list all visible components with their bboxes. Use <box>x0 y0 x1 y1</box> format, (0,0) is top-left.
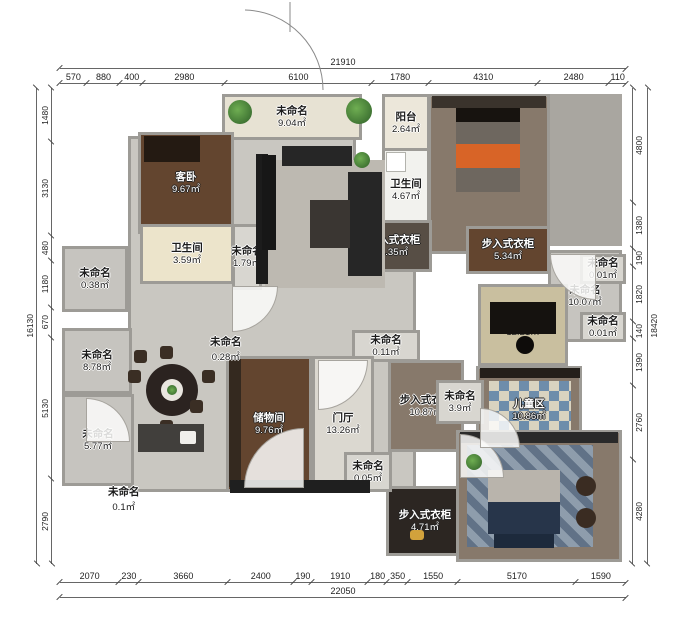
dim-total-label: 22050 <box>60 585 626 598</box>
wardrobe[interactable] <box>432 96 546 108</box>
dim-segment: 190 <box>294 570 313 583</box>
room-label: 步入式衣柜5.34㎡ <box>469 229 547 271</box>
room-balcony[interactable]: 阳台2.64㎡ <box>382 94 430 152</box>
dim-segment: 1380 <box>632 203 645 249</box>
dim-segment: 1590 <box>576 570 626 583</box>
dim-segment: 480 <box>39 236 52 262</box>
dim-segment: 190 <box>632 249 645 267</box>
room-label-unnamed-0-1: 未命名 0.1㎡ <box>108 484 140 513</box>
dining-chair <box>190 400 203 413</box>
dim-segment: 180 <box>368 570 386 583</box>
armchair <box>576 508 596 528</box>
coffee-table[interactable] <box>310 200 350 248</box>
wall-block <box>550 94 622 246</box>
sofa[interactable] <box>348 172 382 276</box>
dining-chair <box>128 370 141 383</box>
room-unnamed-3-9[interactable]: 未命名3.9㎡ <box>436 380 484 424</box>
plant-icon <box>228 100 252 124</box>
dim-segment: 2480 <box>538 71 609 84</box>
kitchen-island[interactable] <box>138 424 204 452</box>
dim-segment: 1780 <box>372 71 429 84</box>
bed-blanket-navy <box>488 502 560 534</box>
room-label: 未命名0.01㎡ <box>583 315 623 339</box>
dim-total-top: 21910 <box>60 56 626 69</box>
kids-shelf <box>480 368 580 378</box>
room-label-unnamed-0-28: 未命名 0.28㎡ <box>210 334 242 363</box>
shower <box>386 152 406 172</box>
room-label: 阳台2.64㎡ <box>385 97 427 149</box>
dim-segment: 1180 <box>39 261 52 307</box>
bed-blanket-orange <box>456 144 520 168</box>
dim-segment: 1820 <box>632 267 645 322</box>
bed-headboard <box>456 108 520 122</box>
dining-chair <box>134 350 147 363</box>
dim-segment: 5170 <box>458 570 576 583</box>
sofa[interactable] <box>282 146 352 166</box>
study-desk[interactable] <box>490 302 556 334</box>
dim-segment: 1910 <box>312 570 368 583</box>
plant-icon <box>346 98 372 124</box>
cabinet <box>262 155 276 250</box>
dim-segment: 670 <box>39 308 52 338</box>
dim-segment: 1390 <box>632 339 645 386</box>
dim-segment: 2790 <box>39 479 52 564</box>
dim-segment: 4310 <box>429 71 538 84</box>
dim-total-bottom: 22050 <box>60 585 626 598</box>
room-label: 卫生间3.59㎡ <box>143 227 231 281</box>
room-label: 未命名3.9㎡ <box>439 383 481 421</box>
room-unnamed-8-78[interactable]: 未命名8.78㎡ <box>62 328 132 394</box>
dim-segment: 110 <box>609 71 626 84</box>
dim-segment: 880 <box>87 71 120 84</box>
room-label: 未命名8.78㎡ <box>65 331 129 391</box>
closet-item <box>410 530 424 540</box>
dim-segment: 570 <box>60 71 87 84</box>
dim-segment: 2760 <box>632 386 645 460</box>
dim-segment: 1480 <box>39 88 52 142</box>
plant-icon <box>466 454 482 470</box>
room-unnamed-0-01-b[interactable]: 未命名0.01㎡ <box>580 312 626 342</box>
room-walkin-closet-5-34[interactable]: 步入式衣柜5.34㎡ <box>466 226 550 274</box>
dim-segment: 3130 <box>39 142 52 235</box>
dim-total-right: 18420 <box>647 88 660 564</box>
bed-pillows <box>494 534 554 548</box>
dim-chain-top: 570 880 400 2980 6100 1780 4310 2480 110 <box>60 71 626 84</box>
storage-shelf <box>229 359 241 487</box>
armchair <box>576 476 596 496</box>
dim-segment: 1550 <box>408 570 457 583</box>
dim-segment: 3660 <box>139 570 228 583</box>
dim-segment: 350 <box>387 570 409 583</box>
dim-segment: 4280 <box>632 460 645 564</box>
floor-plan-canvas[interactable]: 客餐厅90.07㎡ 未命名9.04㎡ 阳台2.64㎡ 女儿房22.85㎡ 客卧9… <box>60 88 626 564</box>
dim-total-label: 16130 <box>24 88 37 564</box>
dining-chair <box>160 346 173 359</box>
dim-segment: 2070 <box>60 570 119 583</box>
dim-total-label: 21910 <box>60 56 626 69</box>
room-bathroom-2[interactable]: 卫生间3.59㎡ <box>140 224 234 284</box>
plant-icon <box>354 152 370 168</box>
dim-chain-left: 1480 3130 480 1180 670 5130 2790 <box>39 88 52 564</box>
dim-chain-right: 4800 1380 190 1820 140 1390 2760 4280 <box>632 88 645 564</box>
dim-segment: 400 <box>120 71 143 84</box>
guest-bed[interactable] <box>144 136 200 162</box>
dim-total-label: 18420 <box>647 88 660 564</box>
desk-chair <box>516 336 534 354</box>
dim-chain-bottom: 2070 230 3660 2400 190 1910 180 350 1550… <box>60 570 626 583</box>
room-label: 未命名0.38㎡ <box>65 249 125 309</box>
dining-chair <box>202 370 215 383</box>
room-unnamed-0-38[interactable]: 未命名0.38㎡ <box>62 246 128 312</box>
dim-segment: 4800 <box>632 88 645 203</box>
dim-segment: 140 <box>632 322 645 339</box>
dim-total-left: 16130 <box>24 88 37 564</box>
entry-door-arc <box>235 2 325 92</box>
dim-segment: 5130 <box>39 338 52 479</box>
dim-segment: 2980 <box>143 71 225 84</box>
dim-segment: 230 <box>119 570 138 583</box>
